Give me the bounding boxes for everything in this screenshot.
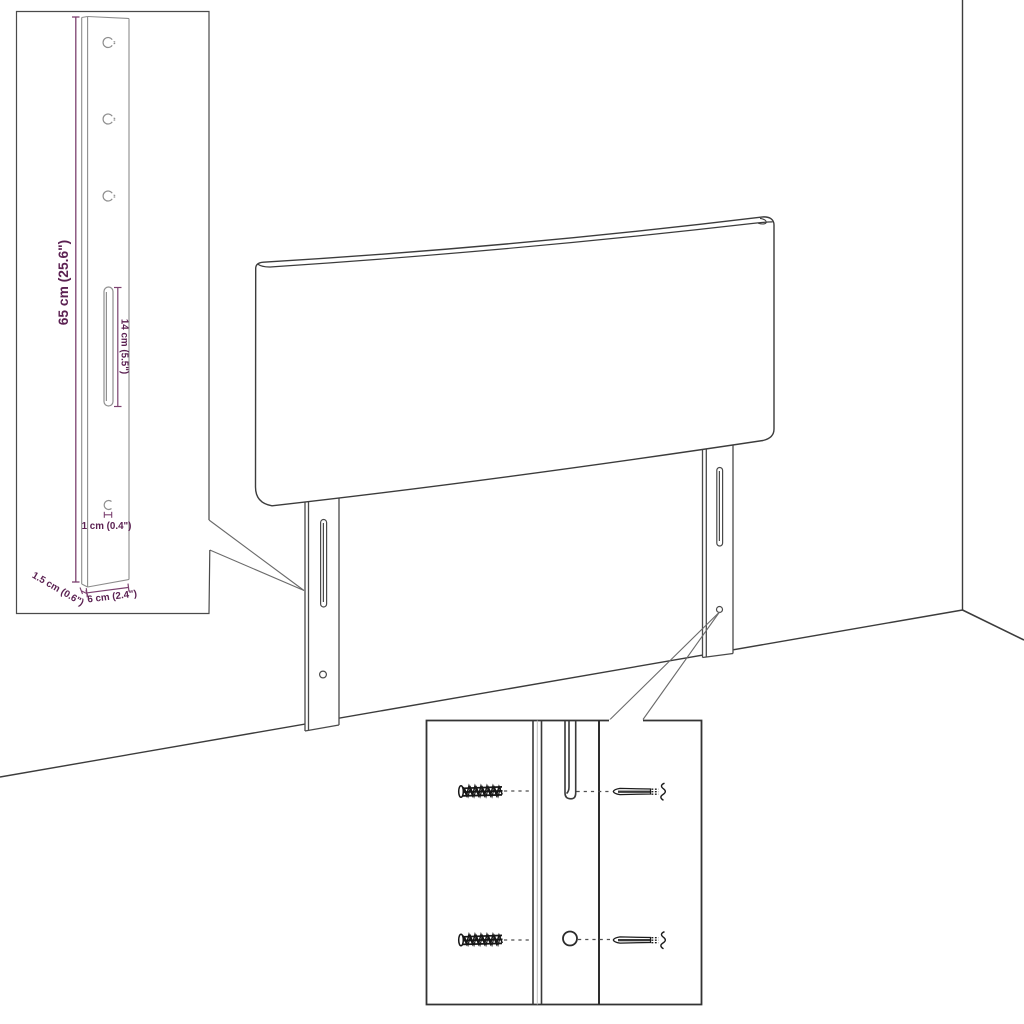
svg-text:65 cm (25.6"): 65 cm (25.6") <box>56 240 71 326</box>
svg-text:14 cm (5.5"): 14 cm (5.5") <box>119 319 130 374</box>
svg-text:1 cm (0.4"): 1 cm (0.4") <box>82 521 132 532</box>
